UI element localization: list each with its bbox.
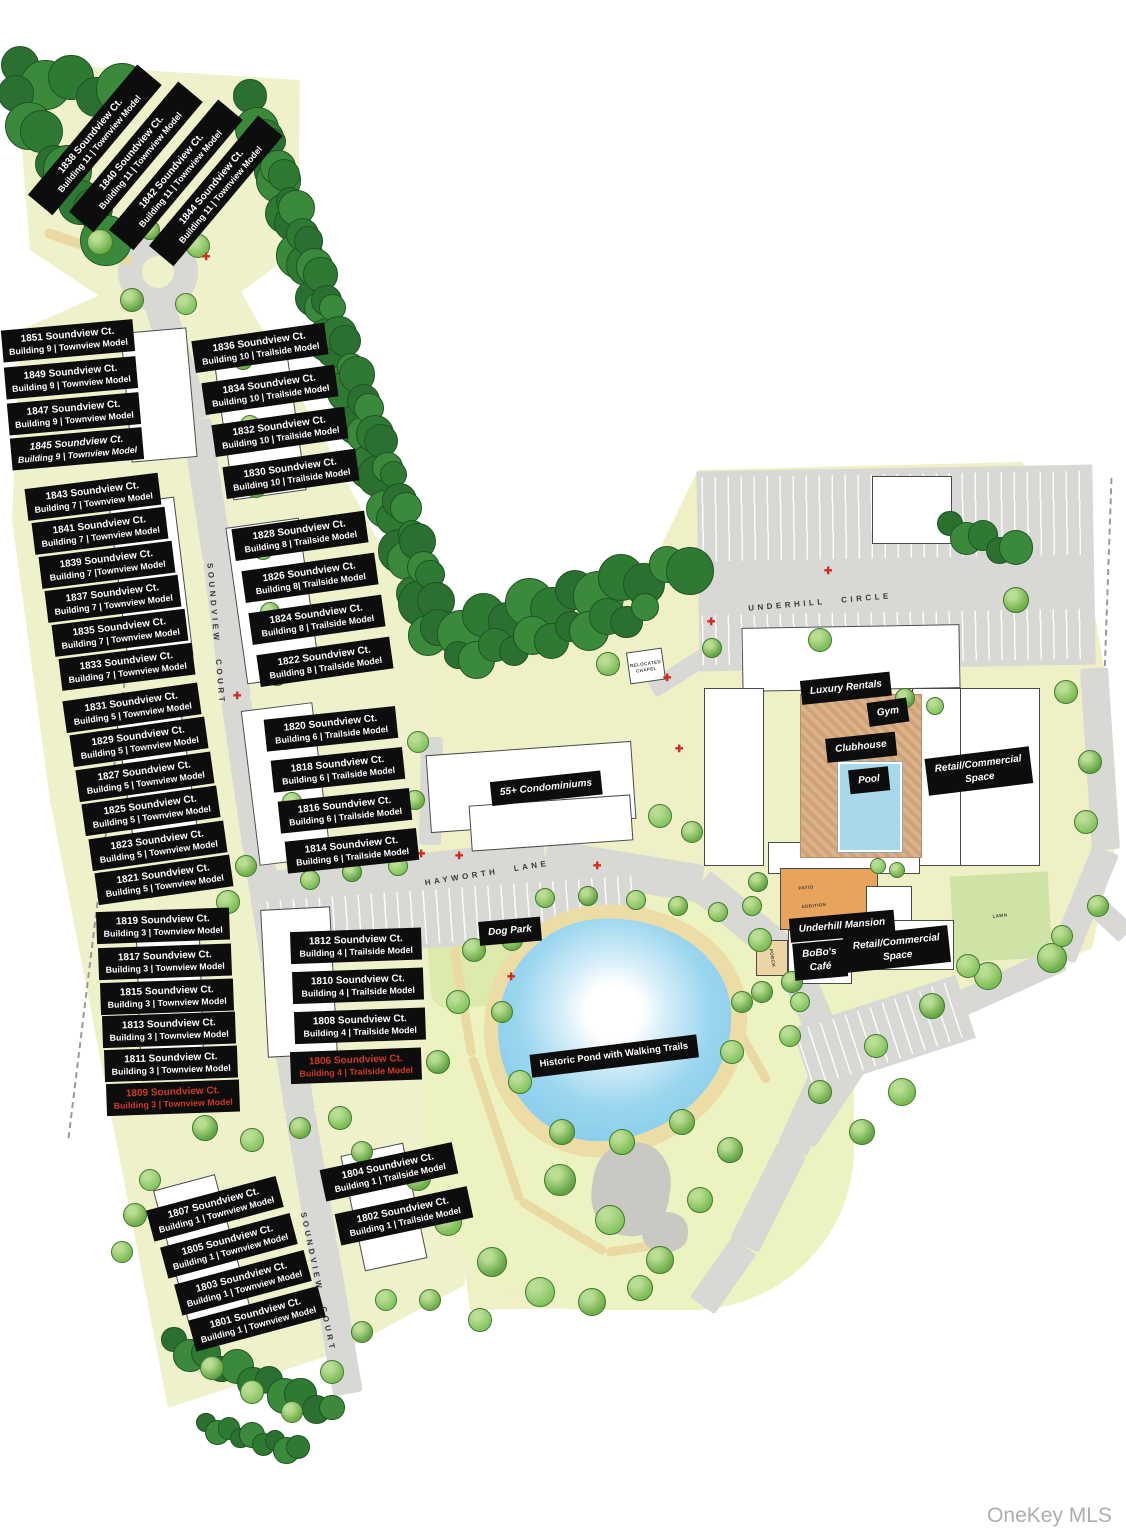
- onekey-mls-watermark: OneKey MLS: [987, 1504, 1112, 1528]
- site-plan-map: ✚✚✚✚✚✚✚✚✚✚ UNDERHILL CIRCLEHAYWORTH LANE…: [0, 0, 1126, 1536]
- unit-label-1810: 1810 Soundview Ct.Building 4 | Trailside…: [292, 968, 424, 1005]
- label-layer: 1838 Soundview Ct.Building 11 | Townview…: [0, 0, 1126, 1536]
- micro-label-patio: PATIO: [798, 884, 814, 891]
- micro-label-lawn: LAWN: [992, 912, 1007, 919]
- micro-label-addition: ADDITION: [801, 902, 826, 910]
- unit-label-1806: 1806 Soundview Ct.Building 4 | Trailside…: [290, 1048, 422, 1085]
- unit-label-1815: 1815 Soundview Ct.Building 3 | Townview …: [100, 978, 234, 1015]
- unit-label-1818: 1818 Soundview Ct.Building 6 | Trailside…: [271, 747, 406, 793]
- unit-label-1832: 1832 Soundview Ct.Building 10 | Trailsid…: [211, 407, 348, 458]
- unit-label-1822: 1822 Soundview Ct.Building 8 | Trailside…: [256, 637, 393, 688]
- unit-label-1814: 1814 Soundview Ct.Building 6 | Trailside…: [285, 828, 420, 874]
- area-label-dog-park: Dog Park: [478, 917, 542, 946]
- unit-label-1836: 1836 Soundview Ct.Building 10 | Trailsid…: [191, 323, 328, 374]
- area-label-gym: Gym: [866, 698, 909, 727]
- micro-label-porch: PORCH: [768, 948, 777, 967]
- unit-label-1817: 1817 Soundview Ct.Building 3 | Townview …: [98, 943, 232, 980]
- area-label-bobo-s-caf: BoBo'sCafé: [792, 939, 848, 980]
- unit-label-1816: 1816 Soundview Ct.Building 6 | Trailside…: [278, 788, 413, 834]
- unit-label-1813: 1813 Soundview Ct.Building 3 | Townview …: [102, 1011, 236, 1048]
- unit-label-1812: 1812 Soundview Ct.Building 4 | Trailside…: [290, 928, 422, 965]
- area-label-pool: Pool: [848, 766, 890, 794]
- unit-label-1824: 1824 Soundview Ct.Building 8 | Trailside…: [248, 595, 385, 646]
- unit-label-1819: 1819 Soundview Ct.Building 3 | Townview …: [96, 907, 230, 944]
- unit-label-1828: 1828 Soundview Ct.Building 8 | Trailside…: [231, 511, 368, 562]
- area-label-clubhouse: Clubhouse: [825, 732, 897, 763]
- unit-label-1808: 1808 Soundview Ct.Building 4 | Trailside…: [294, 1008, 426, 1045]
- unit-label-1851: 1851 Soundview Ct.Building 9 | Townview …: [1, 319, 135, 363]
- unit-label-1826: 1826 Soundview Ct.Building 8| Trailside …: [241, 553, 378, 604]
- micro-label-relocated-chapel: RELOCATEDCHAPEL: [630, 659, 663, 675]
- unit-label-1830: 1830 Soundview Ct.Building 10 | Trailsid…: [222, 449, 359, 500]
- area-label-historic-pond-with-walking-trails: Historic Pond with Walking Trails: [529, 1034, 698, 1077]
- unit-label-1820: 1820 Soundview Ct.Building 6 | Trailside…: [264, 706, 399, 752]
- unit-label-1809: 1809 Soundview Ct.Building 3 | Townview …: [106, 1079, 240, 1116]
- area-label-55-condominiums: 55+ Condominiums: [490, 771, 602, 806]
- area-label-retail-commercial-space: Retail/CommercialSpace: [925, 746, 1034, 796]
- unit-label-1811: 1811 Soundview Ct.Building 3 | Townview …: [104, 1045, 238, 1082]
- area-label-luxury-rentals: Luxury Rentals: [800, 672, 892, 705]
- unit-label-1834: 1834 Soundview Ct.Building 10 | Trailsid…: [201, 365, 338, 416]
